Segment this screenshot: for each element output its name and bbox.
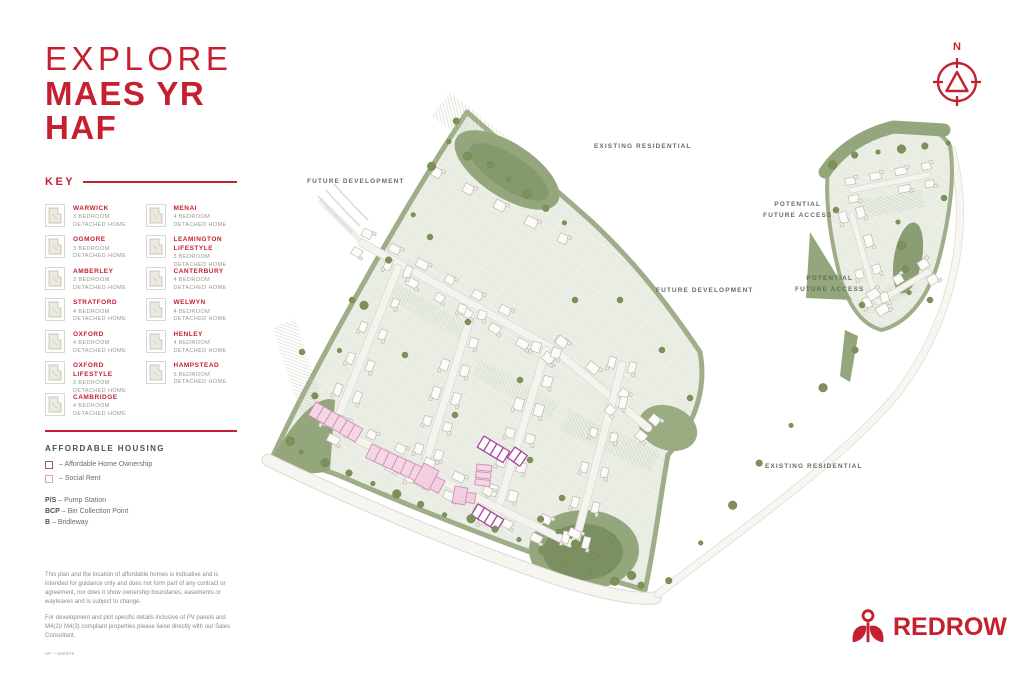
- site-plan-page: FUTURE DEVELOPMENTEXISTING RESIDENTIALFU…: [0, 0, 1024, 683]
- page-title: EXPLORE MAES YR HAF: [45, 42, 237, 146]
- key-item: MENAI4 BEDROOM DETACHED HOME: [146, 204, 238, 230]
- abbreviations-legend: P/S – Pump StationBCP – Bin Collection P…: [45, 495, 237, 529]
- abbreviation-row: P/S – Pump Station: [45, 495, 237, 506]
- compass-needle-triangle: [947, 72, 968, 91]
- house-type-name: OGMORE: [73, 236, 126, 244]
- key-item-text: AMBERLEY3 BEDROOM DETACHED HOME: [73, 267, 126, 293]
- key-heading-rule: [83, 181, 237, 183]
- house-type-name: AMBERLEY: [73, 268, 126, 276]
- map-label: EXISTING RESIDENTIAL: [765, 461, 862, 472]
- map-label: FUTURE DEVELOPMENT: [656, 285, 753, 296]
- legend-label: – Affordable Home Ownership: [59, 461, 152, 468]
- house-type-name: CANTERBURY: [174, 268, 227, 276]
- affordable-housing-heading: AFFORDABLE HOUSING: [45, 444, 237, 453]
- house-type-description: 4 BEDROOM DETACHED HOME: [73, 309, 126, 324]
- house-type-description: 4 BEDROOM DETACHED HOME: [174, 277, 227, 292]
- map-label: EXISTING RESIDENTIAL: [594, 141, 691, 152]
- legend-label: – Social Rent: [59, 475, 101, 482]
- house-plan-thumbnail: [146, 361, 166, 384]
- house-type-description: 4 BEDROOM DETACHED HOME: [73, 340, 126, 355]
- page-title-development-name-2: HAF: [45, 111, 237, 146]
- house-type-description: 4 BEDROOM DETACHED HOME: [73, 403, 126, 418]
- key-item-text: WELWYN4 BEDROOM DETACHED HOME: [174, 298, 227, 324]
- house-plan-thumbnail: [45, 393, 65, 416]
- house-type-description: 4 BEDROOM DETACHED HOME: [174, 214, 227, 229]
- house-plan-thumbnail: [45, 204, 65, 227]
- redrow-logo: REDROW: [849, 606, 1007, 648]
- key-item: CAMBRIDGE4 BEDROOM DETACHED HOME: [45, 393, 137, 419]
- house-plan-thumbnail: [45, 330, 65, 353]
- future-development-road-stub: [318, 184, 368, 245]
- house-type-description: 3 BEDROOM DETACHED HOME: [73, 214, 126, 229]
- house-type-description: 5 BEDROOM DETACHED HOME: [174, 372, 227, 387]
- key-item: LEAMINGTON LIFESTYLE3 BEDROOM DETACHED H…: [146, 235, 238, 261]
- house-type-name: STRATFORD: [73, 299, 126, 307]
- key-column-right: MENAI4 BEDROOM DETACHED HOMELEAMINGTON L…: [146, 204, 238, 425]
- key-item: OGMORE3 BEDROOM DETACHED HOME: [45, 235, 137, 261]
- house-plan-thumbnail: [146, 267, 166, 290]
- key-item: STRATFORD4 BEDROOM DETACHED HOME: [45, 298, 137, 324]
- page-title-development-name-1: MAES YR: [45, 77, 237, 112]
- key-item-text: CAMBRIDGE4 BEDROOM DETACHED HOME: [73, 393, 126, 419]
- house-plan-thumbnail: [146, 235, 166, 258]
- legend-row: – Affordable Home Ownership: [45, 461, 237, 469]
- house-type-name: HENLEY: [174, 331, 227, 339]
- key-item-text: STRATFORD4 BEDROOM DETACHED HOME: [73, 298, 126, 324]
- key-item-text: LEAMINGTON LIFESTYLE3 BEDROOM DETACHED H…: [174, 235, 238, 261]
- disclaimer: This plan and the location of affordable…: [45, 571, 237, 658]
- north-compass: N: [926, 38, 988, 115]
- redrow-logo-text: REDROW: [893, 613, 1007, 642]
- house-type-name: LEAMINGTON LIFESTYLE: [174, 236, 238, 253]
- house-type-name: OXFORD: [73, 331, 126, 339]
- key-item-text: OXFORD LIFESTYLE3 BEDROOM DETACHED HOME: [73, 361, 137, 387]
- house-type-name: MENAI: [174, 205, 227, 213]
- key-item: OXFORD4 BEDROOM DETACHED HOME: [45, 330, 137, 356]
- house-plan-thumbnail: [146, 330, 166, 353]
- disclaimer-paragraph-1: This plan and the location of affordable…: [45, 571, 237, 607]
- legend-swatch: [45, 475, 53, 483]
- key-item: AMBERLEY3 BEDROOM DETACHED HOME: [45, 267, 137, 293]
- house-type-description: 3 BEDROOM DETACHED HOME: [73, 246, 126, 261]
- house-type-name: OXFORD LIFESTYLE: [73, 362, 137, 379]
- disclaimer-paragraph-2: For development and plot specific detail…: [45, 614, 237, 641]
- legend-row: – Social Rent: [45, 475, 237, 483]
- compass-circle: [938, 63, 976, 101]
- sidebar: EXPLORE MAES YR HAF KEY WARWICK3 BEDROOM…: [45, 42, 237, 528]
- key-item-text: OXFORD4 BEDROOM DETACHED HOME: [73, 330, 126, 356]
- compass-ticks: [933, 58, 981, 106]
- key-item-text: HAMPSTEAD5 BEDROOM DETACHED HOME: [174, 361, 227, 387]
- abbreviation-row: B – Bridleway: [45, 517, 237, 528]
- house-type-description: 3 BEDROOM DETACHED HOME: [73, 277, 126, 292]
- house-type-name: WELWYN: [174, 299, 227, 307]
- key-item: HENLEY4 BEDROOM DETACHED HOME: [146, 330, 238, 356]
- house-plan-thumbnail: [45, 267, 65, 290]
- abbreviation-row: BCP – Bin Collection Point: [45, 506, 237, 517]
- key-heading-label: KEY: [45, 176, 75, 188]
- compass-north-label: N: [953, 41, 961, 53]
- house-plan-thumbnail: [45, 235, 65, 258]
- key-item-text: WARWICK3 BEDROOM DETACHED HOME: [73, 204, 126, 230]
- map-label: POTENTIALFUTURE ACCESS: [795, 273, 864, 295]
- legend-swatch: [45, 461, 53, 469]
- key-item: OXFORD LIFESTYLE3 BEDROOM DETACHED HOME: [45, 361, 137, 387]
- key-item-text: HENLEY4 BEDROOM DETACHED HOME: [174, 330, 227, 356]
- house-plan-thumbnail: [146, 204, 166, 227]
- map-label: FUTURE DEVELOPMENT: [307, 176, 404, 187]
- key-item: WELWYN4 BEDROOM DETACHED HOME: [146, 298, 238, 324]
- plan-reference-code: AP – 650876: [45, 651, 237, 658]
- house-plan-thumbnail: [45, 361, 65, 384]
- key-item-text: MENAI4 BEDROOM DETACHED HOME: [174, 204, 227, 230]
- key-item: HAMPSTEAD5 BEDROOM DETACHED HOME: [146, 361, 238, 387]
- key-heading: KEY: [45, 176, 237, 188]
- house-type-name: HAMPSTEAD: [174, 362, 227, 370]
- house-type-description: 4 BEDROOM DETACHED HOME: [174, 340, 227, 355]
- key-item-text: OGMORE3 BEDROOM DETACHED HOME: [73, 235, 126, 261]
- key-column-left: WARWICK3 BEDROOM DETACHED HOMEOGMORE3 BE…: [45, 204, 137, 425]
- house-type-description: 4 BEDROOM DETACHED HOME: [174, 309, 227, 324]
- key-item-text: CANTERBURY4 BEDROOM DETACHED HOME: [174, 267, 227, 293]
- redrow-flower-icon: [849, 606, 887, 648]
- house-plan-thumbnail: [146, 298, 166, 321]
- page-title-explore: EXPLORE: [45, 42, 237, 77]
- house-plan-thumbnail: [45, 298, 65, 321]
- house-type-name: CAMBRIDGE: [73, 394, 126, 402]
- key-item: WARWICK3 BEDROOM DETACHED HOME: [45, 204, 137, 230]
- key-item: CANTERBURY4 BEDROOM DETACHED HOME: [146, 267, 238, 293]
- house-type-key: WARWICK3 BEDROOM DETACHED HOMEOGMORE3 BE…: [45, 204, 237, 425]
- divider-rule: [45, 430, 237, 432]
- map-label: POTENTIALFUTURE ACCESS: [763, 199, 832, 221]
- house-type-name: WARWICK: [73, 205, 126, 213]
- affordable-housing-legend: – Affordable Home Ownership– Social Rent: [45, 461, 237, 483]
